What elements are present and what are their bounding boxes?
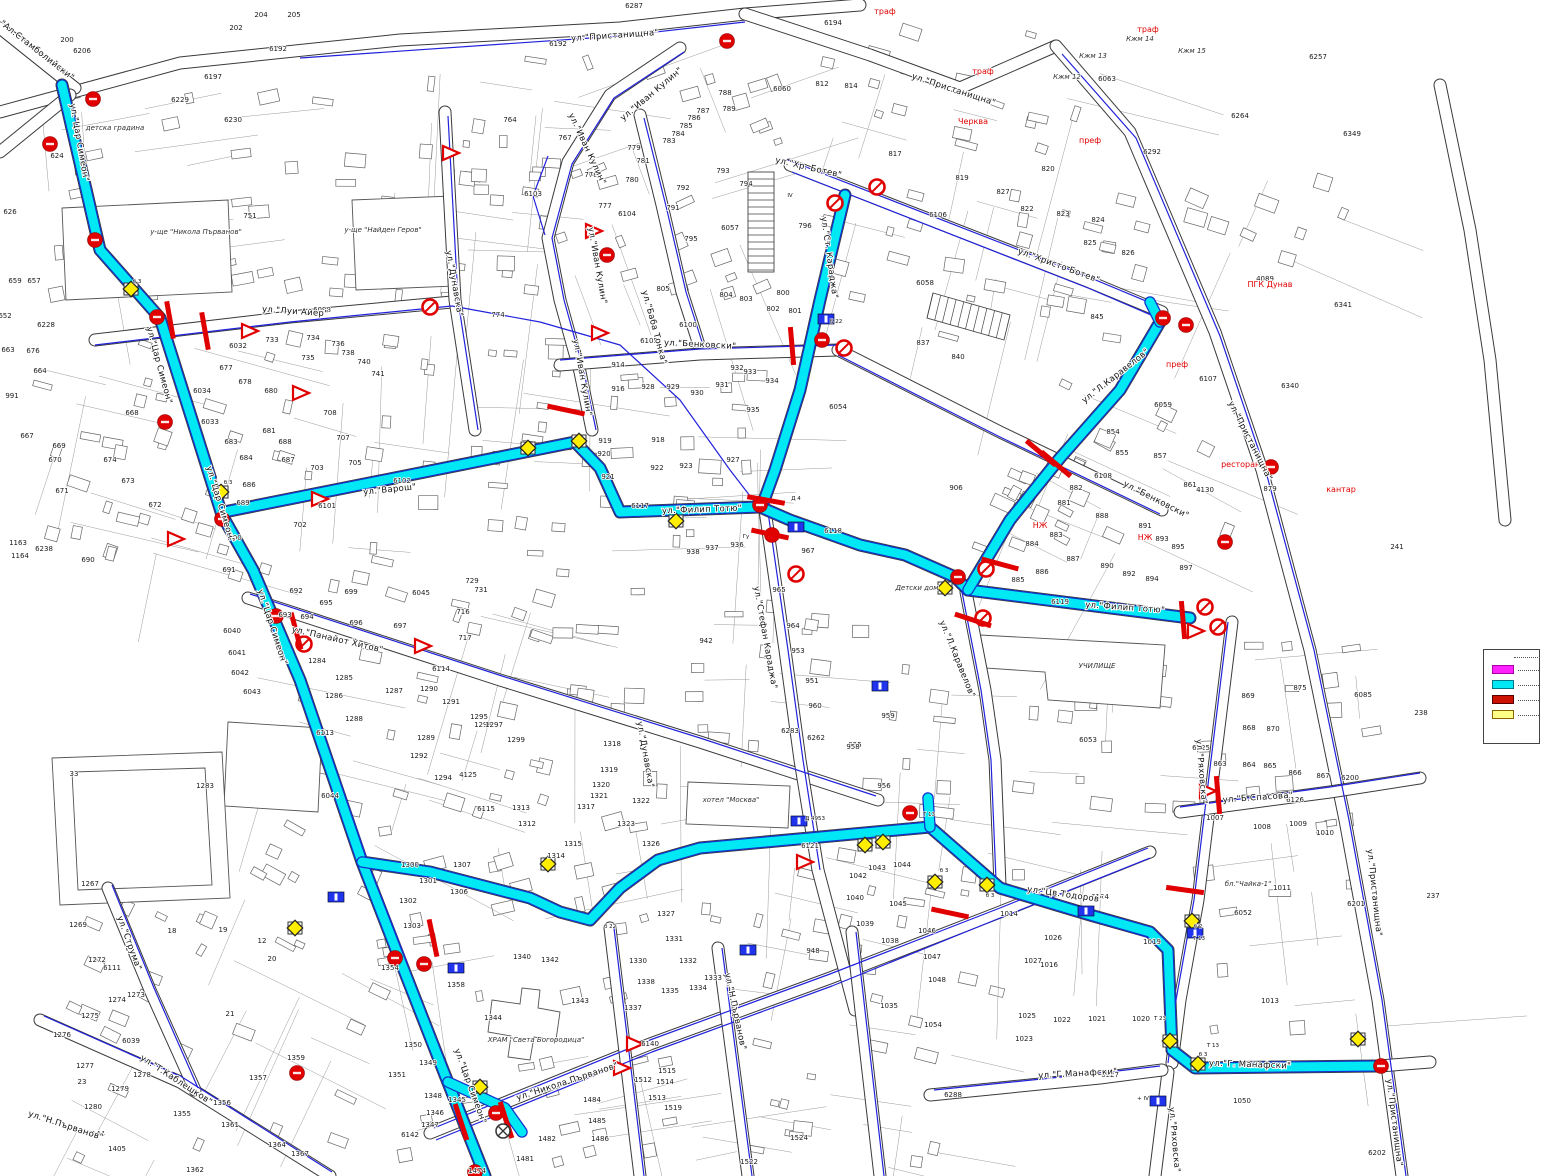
parcel-label: 6045 <box>412 589 430 597</box>
road-fill <box>548 48 680 430</box>
parcel-line <box>234 961 365 1025</box>
parcel-label: 1340 <box>513 953 531 961</box>
parcel-label: 914 <box>611 361 625 369</box>
building <box>553 628 573 638</box>
parcel-label: 1164 <box>11 552 29 560</box>
building <box>984 279 1006 293</box>
legend-label-dots <box>1518 699 1539 701</box>
parcel-label: 693 <box>278 611 291 619</box>
parcel-label: 6192 <box>549 40 567 48</box>
parcel-line <box>187 156 234 166</box>
parcel-label: 6201 <box>1347 900 1365 908</box>
parcel-label: 1524 <box>790 1134 808 1142</box>
parcel-label: 692 <box>289 587 302 595</box>
building <box>615 235 625 248</box>
parcel-label: 1327 <box>657 910 675 918</box>
parcel-label: 870 <box>1266 725 1279 733</box>
parcel-label: 6117 <box>631 502 649 510</box>
building <box>897 915 907 928</box>
parcel-label: 735 <box>301 354 314 362</box>
building <box>810 659 831 676</box>
parcel-label: 751 <box>243 212 256 220</box>
parcel-label: 684 <box>239 454 253 462</box>
building <box>1342 644 1361 653</box>
legend-title-dots <box>1514 656 1540 658</box>
hydrant-marker-blue-icon <box>1078 906 1094 916</box>
building <box>749 1145 764 1153</box>
no-entry-icon <box>837 341 852 356</box>
parcel-label: 6100 <box>679 321 697 329</box>
building <box>1240 228 1256 242</box>
parcel-label: 1315 <box>564 840 582 848</box>
parcel-label: 6113 <box>316 729 334 737</box>
building <box>417 695 427 703</box>
parcel-label: 6194 <box>824 19 842 27</box>
building <box>200 911 218 929</box>
building <box>515 516 528 530</box>
parcel-label: 702 <box>293 521 306 529</box>
building <box>71 525 83 539</box>
parcel-label: 1279 <box>111 1085 129 1093</box>
parcel-label: 931 <box>715 381 728 389</box>
building <box>518 1062 534 1071</box>
building <box>713 478 723 486</box>
building <box>497 256 515 271</box>
parcel-line <box>236 997 299 1131</box>
parcel-line <box>15 1129 78 1176</box>
building <box>1275 775 1293 791</box>
parcel-line <box>1295 1000 1355 1006</box>
parcel-label: 792 <box>676 184 689 192</box>
building <box>899 23 922 41</box>
parcel-line <box>951 1055 1024 1072</box>
parcel-label: 668 <box>125 409 138 417</box>
parcel-line <box>740 468 832 472</box>
building <box>67 475 90 492</box>
parcel-label: 1354 <box>381 964 399 972</box>
map-viewport[interactable]: 2002022042056206624626622962307516192619… <box>0 0 1541 1176</box>
building <box>902 664 909 674</box>
parcel-label: 965 <box>772 586 785 594</box>
building <box>576 624 598 634</box>
hydrant-marker-blue-icon <box>448 963 464 973</box>
parcel-label: 827 <box>996 188 1009 196</box>
building <box>233 1023 256 1041</box>
parcel-line <box>480 82 532 90</box>
legend-label-dots <box>1518 669 1539 671</box>
valve-icon <box>1350 1031 1366 1047</box>
hydrant-icon <box>158 415 173 430</box>
hotel-moskva-outline <box>686 782 790 828</box>
hydrant-icon <box>43 137 58 152</box>
building <box>952 126 971 141</box>
building <box>347 1019 366 1035</box>
hydrant-marker-blue-icon <box>328 892 344 902</box>
parcel-label: 731 <box>474 586 487 594</box>
parcel-label: 663 <box>1 346 14 354</box>
water-line <box>1062 54 1406 1176</box>
valve-icon <box>287 920 303 936</box>
parcel-label: 892 <box>1122 570 1135 578</box>
poi-red-label: НЖ <box>1033 521 1048 530</box>
parcel-label: 1357 <box>249 1074 267 1082</box>
parcel-line <box>696 1152 737 1161</box>
church-outline <box>488 988 560 1060</box>
parcel-label: 866 <box>1288 769 1302 777</box>
poi-label: хотел "Москва" <box>702 796 760 804</box>
building <box>640 914 649 923</box>
parcel-label: 1342 <box>541 956 559 964</box>
parcel-label: 865 <box>1263 762 1276 770</box>
street-label: ул."Христо Ботев" <box>1016 247 1101 286</box>
parcel-line <box>910 327 922 378</box>
hydrant-icon <box>150 310 165 325</box>
parcel-label: 1287 <box>385 687 403 695</box>
parcel-line <box>58 396 85 529</box>
building <box>283 400 293 414</box>
parcel-label: 1318 <box>603 740 621 748</box>
parcel-label: 781 <box>636 157 649 165</box>
parcel-label: 699 <box>344 588 357 596</box>
building <box>691 664 704 673</box>
building <box>329 288 343 297</box>
parcel-label: 793 <box>716 167 729 175</box>
valve-icon <box>571 433 587 449</box>
water-main-casing <box>760 507 1190 618</box>
parcel-label: 1269 <box>69 921 87 929</box>
parcel-label: 6283 <box>781 727 799 735</box>
building <box>427 76 435 91</box>
gate-valve-bar-icon <box>931 907 969 920</box>
parcel-label: 6192 <box>269 45 287 53</box>
parcel-label: 705 <box>348 459 361 467</box>
micro-label: б 3 <box>224 480 233 486</box>
building <box>284 277 302 293</box>
parcel-label: 805 <box>656 285 669 293</box>
parcel-label: 1044 <box>893 861 911 869</box>
building <box>631 588 644 595</box>
parcel-label: 826 <box>1121 249 1135 257</box>
parcel-line <box>687 492 795 499</box>
building <box>539 1056 554 1070</box>
parcel-label: 923 <box>679 462 692 470</box>
building <box>193 1138 204 1152</box>
parcel-label: 1306 <box>450 888 468 896</box>
building <box>914 1047 938 1064</box>
parcel-line <box>348 548 410 553</box>
parcel-label: 6104 <box>618 210 636 218</box>
parcel-label: 855 <box>1115 449 1128 457</box>
building <box>419 496 438 510</box>
parcel-label: 1302 <box>399 897 417 905</box>
parcel-label: 1331 <box>665 935 683 943</box>
legend-row-red <box>1492 692 1539 707</box>
parcel-label: 1039 <box>856 920 874 928</box>
parcel-line <box>950 820 1060 835</box>
parcel-label: 1291 <box>442 698 460 706</box>
parcel-label: 1334 <box>689 984 707 992</box>
triangle-marker-icon <box>168 532 184 546</box>
building <box>837 848 856 863</box>
parcel-line <box>612 547 746 551</box>
building <box>821 57 835 69</box>
parcel-label: 687 <box>281 456 294 464</box>
parcel-label: 1297 <box>485 721 503 729</box>
parcel-label: 1277 <box>76 1062 94 1070</box>
building <box>621 374 638 381</box>
parcel-label: 820 <box>1041 165 1054 173</box>
parcel-label: 885 <box>1011 576 1024 584</box>
building <box>382 416 391 428</box>
building <box>533 589 556 607</box>
parcel-label: 1054 <box>924 1021 942 1029</box>
hydrant-icon <box>903 806 918 821</box>
parcel-line <box>680 746 681 903</box>
parcel-label: 6039 <box>122 1037 140 1045</box>
parcel-label: 883 <box>1049 531 1062 539</box>
road-casing <box>760 507 1190 618</box>
parcel-label: 1348 <box>424 1092 442 1100</box>
parcel-label: 1344 <box>484 1014 502 1022</box>
parcel-label: 740 <box>357 358 370 366</box>
building <box>699 459 722 474</box>
parcel-label: 919 <box>598 437 611 445</box>
parcel-line <box>733 492 743 644</box>
parcel-label: 1405 <box>108 1145 126 1153</box>
parcel-label: 1301 <box>419 877 437 885</box>
parcel-line <box>433 74 440 211</box>
building <box>989 986 1005 998</box>
building <box>232 197 252 207</box>
parcel-label: 6106 <box>929 211 947 219</box>
building <box>443 943 460 954</box>
parcel-label: 1026 <box>1044 934 1062 942</box>
building <box>284 820 305 836</box>
parcel-line <box>917 749 965 753</box>
parcel-label: 20 <box>268 955 277 963</box>
building <box>265 352 275 362</box>
parcel-label: 881 <box>1057 499 1070 507</box>
parcel-label: 1025 <box>1018 1012 1036 1020</box>
parcel-label: 241 <box>1390 543 1403 551</box>
parcel-label: 967 <box>801 547 814 555</box>
building <box>512 607 527 620</box>
parcel-label: 1294 <box>434 774 452 782</box>
parcel-label: 6111 <box>103 964 121 972</box>
parcel-line <box>789 868 795 921</box>
parcel-label: 6108 <box>1094 472 1112 480</box>
parcel-label: 960 <box>808 702 821 710</box>
stadium-inner-outline <box>72 768 212 890</box>
parcel-label: 1474 <box>468 1167 486 1175</box>
building <box>490 793 502 801</box>
parcel-label: 204 <box>254 11 268 19</box>
parcel-label: 689 <box>236 499 249 507</box>
parcel-line <box>607 1121 711 1137</box>
building <box>66 1001 82 1014</box>
parcel-label: 1284 <box>308 657 326 665</box>
building <box>887 251 910 265</box>
building <box>944 257 965 273</box>
parcel-label: 18 <box>168 927 177 935</box>
parcel-line <box>888 1116 902 1176</box>
map-canvas[interactable]: 2002022042056206624626622962307516192619… <box>0 0 1541 1176</box>
parcel-label: 1283 <box>196 782 214 790</box>
building <box>103 501 113 514</box>
parcel-label: 1013 <box>1261 997 1279 1005</box>
parcel-label: 1278 <box>133 1071 151 1079</box>
hydrant-icon <box>1156 311 1171 326</box>
parcel-line <box>947 152 963 228</box>
building <box>557 569 570 577</box>
building <box>524 285 539 296</box>
building <box>181 508 197 523</box>
parcel-line <box>455 211 513 220</box>
parcel-label: 953 <box>791 647 804 655</box>
parcel-label: 6034 <box>193 387 211 395</box>
parcel-label: 804 <box>719 291 733 299</box>
parcel-label: 664 <box>33 367 47 375</box>
parcel-label: 6206 <box>73 47 91 55</box>
parcel-label: 777 <box>598 202 611 210</box>
building <box>352 570 370 585</box>
building <box>538 422 547 432</box>
parcel-label: 1022 <box>1053 1016 1071 1024</box>
parcel-label: 884 <box>1025 540 1039 548</box>
parcel-label: 686 <box>242 481 256 489</box>
hydrant-icon <box>290 1066 305 1081</box>
building <box>365 447 383 462</box>
legend-swatch-red <box>1492 695 1514 704</box>
building <box>1282 641 1293 651</box>
parcel-label: 626 <box>3 208 17 216</box>
poi-label: у-ще "Найден Геров" <box>343 226 421 234</box>
micro-label: Т 13 <box>1192 936 1206 942</box>
building <box>417 672 439 683</box>
parcel-label: 1016 <box>1040 961 1058 969</box>
building <box>711 248 732 266</box>
parcel-label: 200 <box>60 36 73 44</box>
parcel-label: 6257 <box>1309 53 1327 61</box>
parcel-label: 942 <box>699 637 712 645</box>
parcel-line <box>714 625 761 626</box>
building <box>657 784 668 799</box>
parcel-line <box>42 369 106 385</box>
parcel-label: 1313 <box>512 804 530 812</box>
legend-row-main-magenta <box>1492 662 1539 677</box>
building <box>494 852 514 870</box>
parcel-line <box>1287 824 1294 872</box>
micro-label: + IV <box>1137 1096 1149 1102</box>
parcel-label: 703 <box>310 464 323 472</box>
parcel-label: 6197 <box>204 73 222 81</box>
parcel-line <box>1271 843 1287 985</box>
parcel-label: 12 <box>258 937 267 945</box>
building <box>598 625 619 634</box>
poi-label: у-ще "Никола Първанов" <box>149 228 242 236</box>
parcel-label: 789 <box>722 105 735 113</box>
parcel-label: 672 <box>148 501 161 509</box>
parcel-label: 824 <box>1091 216 1105 224</box>
parcel-label: 1280 <box>84 1103 102 1111</box>
building <box>162 117 180 131</box>
parcel-label: 6107 <box>1199 375 1217 383</box>
parcel-label: 795 <box>684 235 697 243</box>
building <box>1055 520 1069 531</box>
parcel-label: 791 <box>666 204 679 212</box>
parcel-label: 951 <box>805 677 818 685</box>
building <box>1067 297 1087 314</box>
parcel-label: 825 <box>1083 239 1096 247</box>
building <box>685 692 703 702</box>
poi-label: Кжм 14 <box>1126 35 1154 43</box>
parcel-label: 6063 <box>1098 75 1116 83</box>
parcel-label: 6288 <box>944 1091 962 1099</box>
parcel-label: 812 <box>815 80 828 88</box>
parcel-label: 6053 <box>1079 736 1097 744</box>
street-label: ул."Н.Първанов" <box>27 1109 105 1143</box>
school-building-outline <box>980 635 1165 708</box>
parcel-label: 817 <box>888 150 901 158</box>
parcel-label: 938 <box>686 548 699 556</box>
parcel-label: 1485 <box>588 1117 606 1125</box>
parcel-label: 1045 <box>889 900 907 908</box>
building <box>385 587 407 602</box>
building <box>196 944 207 957</box>
parcel-label: 738 <box>341 349 354 357</box>
building <box>1047 295 1065 308</box>
poi-red-label: преф <box>1166 360 1188 369</box>
building <box>725 273 737 283</box>
legend-row-yellow <box>1492 707 1539 722</box>
parcel-label: 1355 <box>173 1110 191 1118</box>
street-label: ул."Иван Кулин" <box>585 226 608 304</box>
building <box>658 1056 673 1067</box>
parcel-line <box>300 468 307 552</box>
building <box>449 724 462 740</box>
micro-label: б 2 <box>1194 924 1203 930</box>
legend-label-dots <box>1518 714 1539 716</box>
building <box>556 232 568 243</box>
building <box>378 826 391 836</box>
building <box>552 1156 564 1167</box>
parcel-line <box>1029 772 1079 774</box>
parcel-label: 1347 <box>421 1121 439 1129</box>
parcel-label: 23 <box>78 1078 87 1086</box>
parcel-line <box>1312 892 1318 946</box>
building <box>196 523 214 538</box>
parcel-label: 1482 <box>538 1135 556 1143</box>
parcel-label: 1290 <box>420 685 438 693</box>
parcel-label: 935 <box>746 406 759 414</box>
building <box>370 542 377 554</box>
parcel-label: 803 <box>739 295 752 303</box>
micro-label: IV <box>787 193 793 199</box>
parcel-label: 1274 <box>108 996 126 1004</box>
building <box>1278 251 1296 267</box>
parcel-label: 1023 <box>1015 1035 1033 1043</box>
parcel-line <box>76 404 160 423</box>
parcel-label: 6292 <box>1143 148 1161 156</box>
parcel-label: 678 <box>238 378 251 386</box>
parcel-label: 673 <box>121 477 134 485</box>
building <box>1076 776 1084 783</box>
building <box>154 428 173 446</box>
parcel-label: 1345 <box>448 1096 466 1104</box>
parcel-label: 652 <box>0 312 12 320</box>
parcel-label: 1326 <box>642 840 660 848</box>
parcel-line <box>888 1167 951 1176</box>
